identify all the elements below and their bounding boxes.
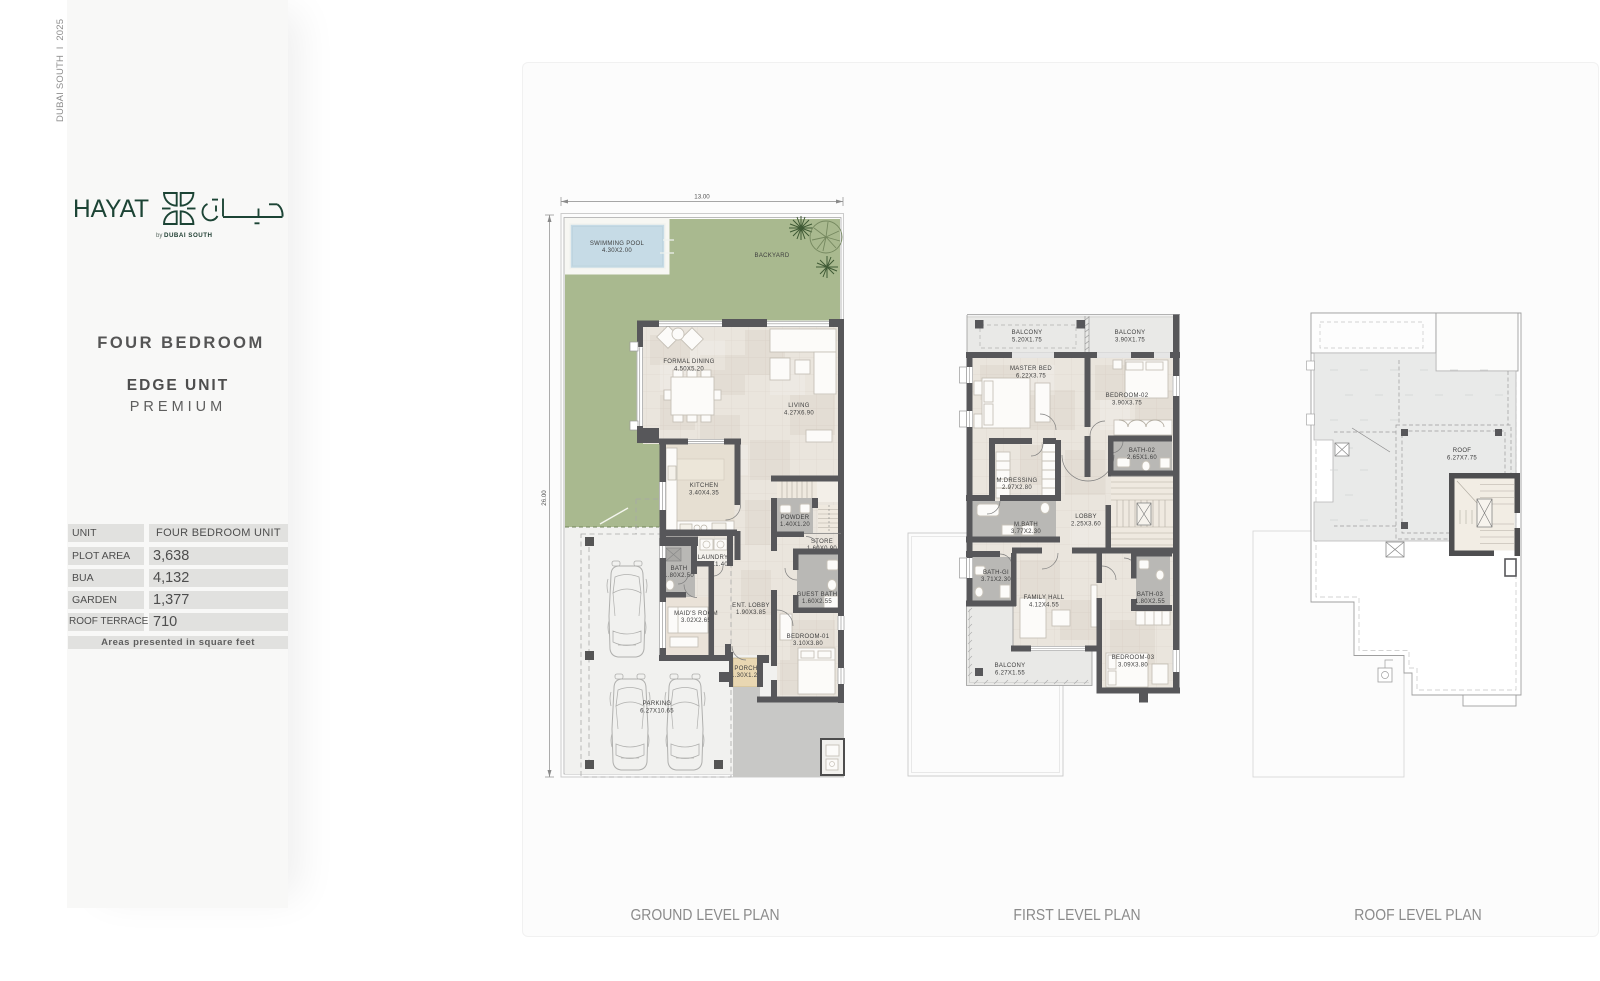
svg-text:1.80X2.50: 1.80X2.50 <box>664 573 694 579</box>
svg-text:1.30X1.25: 1.30X1.25 <box>731 673 761 679</box>
svg-text:POWDER: POWDER <box>781 515 810 521</box>
svg-text:2.25X3.60: 2.25X3.60 <box>1071 522 1101 528</box>
svg-text:KITCHEN: KITCHEN <box>690 483 718 489</box>
svg-text:BALCONY: BALCONY <box>1012 330 1043 336</box>
svg-text:M.DRESSING: M.DRESSING <box>996 478 1037 484</box>
svg-text:3.10X3.80: 3.10X3.80 <box>793 641 823 647</box>
svg-text:3.90X3.75: 3.90X3.75 <box>1112 401 1142 407</box>
svg-text:FORMAL DINING: FORMAL DINING <box>663 359 714 365</box>
svg-text:BATH-03: BATH-03 <box>1137 592 1164 598</box>
svg-text:26.00: 26.00 <box>541 490 548 506</box>
svg-text:4.27X6.90: 4.27X6.90 <box>784 411 814 417</box>
svg-text:LAUNDRY: LAUNDRY <box>698 555 729 561</box>
svg-text:6.22X3.75: 6.22X3.75 <box>1016 374 1046 380</box>
svg-text:1.40X1.20: 1.40X1.20 <box>780 522 810 528</box>
svg-text:LOBBY: LOBBY <box>1075 514 1097 520</box>
svg-text:4.12X4.55: 4.12X4.55 <box>1029 603 1059 609</box>
svg-text:PARKING: PARKING <box>643 701 672 707</box>
svg-text:BATH: BATH <box>671 566 688 572</box>
svg-text:1.80X2.55: 1.80X2.55 <box>1135 599 1165 605</box>
svg-text:3.71X2.30: 3.71X2.30 <box>981 577 1011 583</box>
svg-text:BATH-GI: BATH-GI <box>983 570 1009 576</box>
svg-text:BEDROOM-03: BEDROOM-03 <box>1112 655 1155 661</box>
svg-text:4.50X5.20: 4.50X5.20 <box>674 367 704 373</box>
svg-text:6.27X1.55: 6.27X1.55 <box>995 671 1025 677</box>
svg-text:DUBAI SOUTH: DUBAI SOUTH <box>164 232 212 239</box>
svg-text:13.00: 13.00 <box>694 194 710 201</box>
svg-text:3.40X4.35: 3.40X4.35 <box>689 491 719 497</box>
svg-text:4.30X2.00: 4.30X2.00 <box>602 248 632 254</box>
svg-text:FAMILY HALL: FAMILY HALL <box>1024 595 1065 601</box>
svg-text:ENT. LOBBY: ENT. LOBBY <box>732 603 770 609</box>
svg-text:2.65X1.60: 2.65X1.60 <box>1127 455 1157 461</box>
svg-text:3.02X2.65: 3.02X2.65 <box>681 618 711 624</box>
svg-text:HAYAT: HAYAT <box>73 195 149 223</box>
svg-text:BEDROOM-02: BEDROOM-02 <box>1106 393 1149 399</box>
svg-text:BACKYARD: BACKYARD <box>755 253 790 259</box>
svg-text:SWIMMING POOL: SWIMMING POOL <box>590 241 645 247</box>
svg-text:2.97X2.80: 2.97X2.80 <box>1002 485 1032 491</box>
svg-text:MASTER BED: MASTER BED <box>1010 366 1052 372</box>
svg-text:3.09X3.80: 3.09X3.80 <box>1118 663 1148 669</box>
svg-text:PORCH: PORCH <box>734 666 757 672</box>
svg-text:by: by <box>156 233 162 239</box>
svg-text:6.27X10.65: 6.27X10.65 <box>640 709 674 715</box>
svg-text:M.BATH: M.BATH <box>1014 522 1038 528</box>
svg-text:BATH-02: BATH-02 <box>1129 448 1156 454</box>
svg-text:BEDROOM-01: BEDROOM-01 <box>787 634 830 640</box>
svg-text:BALCONY: BALCONY <box>995 663 1026 669</box>
svg-text:ROOF: ROOF <box>1453 448 1472 454</box>
svg-text:GUEST BATH: GUEST BATH <box>797 592 838 598</box>
svg-text:BALCONY: BALCONY <box>1115 330 1146 336</box>
svg-text:3.90X1.75: 3.90X1.75 <box>1115 338 1145 344</box>
svg-text:3.77X2.30: 3.77X2.30 <box>1011 529 1041 535</box>
svg-text:1.60X2.55: 1.60X2.55 <box>802 599 832 605</box>
svg-text:LIVING: LIVING <box>788 403 810 409</box>
svg-text:1.90X3.85: 1.90X3.85 <box>736 610 766 616</box>
svg-text:5.20X1.75: 5.20X1.75 <box>1012 338 1042 344</box>
svg-text:6.27X7.75: 6.27X7.75 <box>1447 456 1477 462</box>
